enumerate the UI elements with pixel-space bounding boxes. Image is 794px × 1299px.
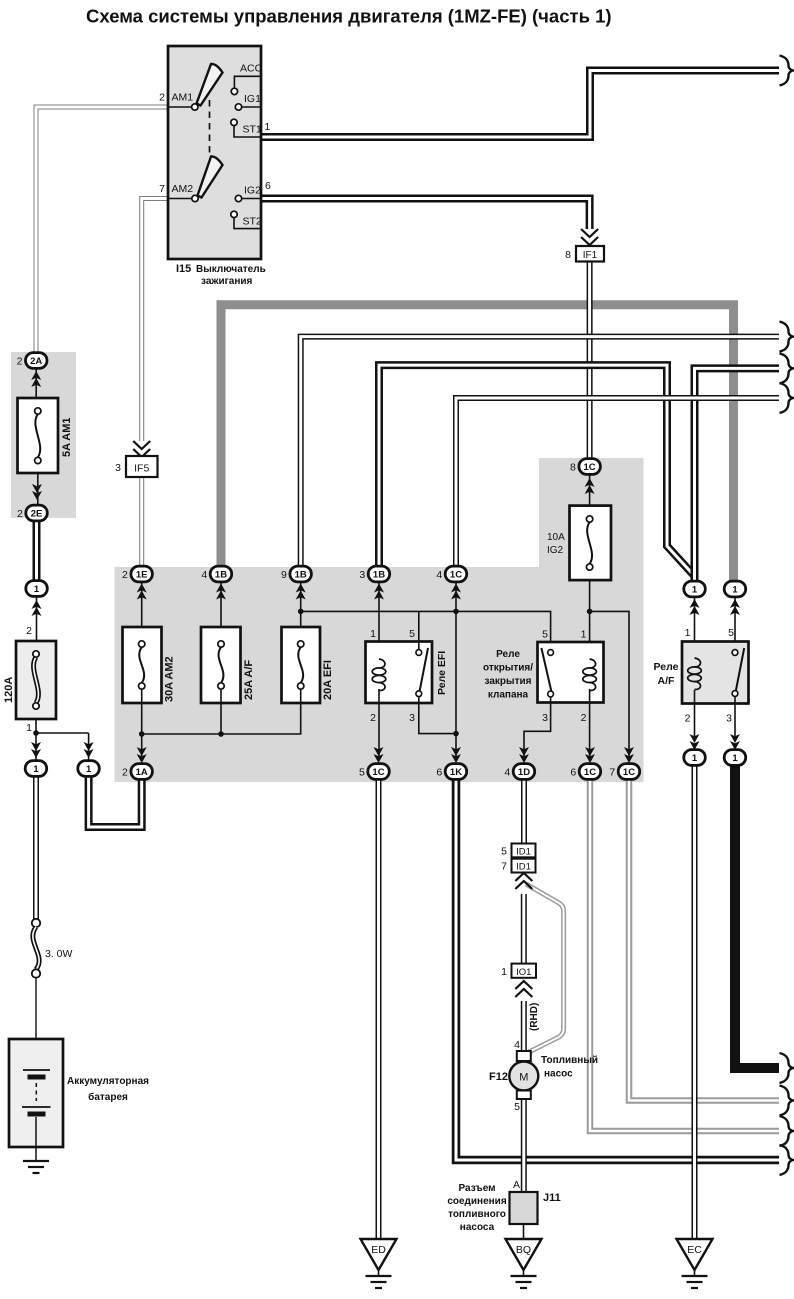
svg-text:8: 8: [565, 249, 571, 261]
svg-text:1: 1: [692, 753, 698, 764]
svg-text:1C: 1C: [450, 570, 462, 581]
svg-text:4: 4: [436, 569, 442, 581]
svg-text:1: 1: [685, 627, 691, 639]
svg-text:соединения: соединения: [447, 1196, 507, 1207]
svg-text:6: 6: [570, 766, 576, 778]
svg-text:1: 1: [581, 629, 587, 641]
svg-text:1: 1: [732, 753, 738, 764]
svg-text:2: 2: [17, 508, 23, 520]
svg-text:2: 2: [159, 92, 165, 104]
svg-text:2: 2: [26, 625, 32, 637]
svg-text:1D: 1D: [518, 767, 530, 778]
svg-text:5: 5: [409, 628, 415, 640]
svg-text:1: 1: [86, 764, 92, 775]
svg-text:5: 5: [542, 629, 548, 641]
svg-text:EC: EC: [687, 1244, 702, 1256]
svg-text:ED: ED: [371, 1244, 386, 1256]
svg-text:насос: насос: [544, 1069, 573, 1080]
svg-text:1C: 1C: [372, 767, 384, 778]
svg-text:Схема системы управления двига: Схема системы управления двигателя (1MZ-…: [86, 6, 612, 27]
svg-text:1A: 1A: [136, 767, 148, 778]
svg-text:2E: 2E: [31, 509, 43, 520]
svg-text:закрытия: закрытия: [485, 676, 532, 687]
svg-text:4: 4: [504, 766, 510, 778]
svg-text:4: 4: [201, 569, 207, 581]
svg-text:5: 5: [514, 1101, 520, 1113]
svg-text:2: 2: [581, 712, 587, 724]
svg-text:ST1: ST1: [243, 124, 262, 136]
svg-text:IG2: IG2: [244, 185, 261, 197]
svg-text:2A: 2A: [30, 356, 42, 367]
svg-text:3: 3: [115, 462, 121, 474]
svg-text:30A AM2: 30A AM2: [164, 656, 176, 702]
svg-text:батарея: батарея: [88, 1091, 128, 1103]
svg-text:6: 6: [436, 766, 442, 778]
svg-text:1B: 1B: [373, 570, 385, 581]
svg-text:IF5: IF5: [134, 463, 149, 475]
svg-text:3: 3: [542, 712, 548, 724]
svg-text:1C: 1C: [623, 767, 635, 778]
svg-text:1: 1: [732, 585, 738, 596]
svg-text:BQ: BQ: [516, 1244, 531, 1256]
svg-text:I15: I15: [176, 263, 191, 275]
svg-text:1: 1: [265, 121, 271, 133]
svg-text:ST2: ST2: [243, 216, 262, 228]
svg-text:7: 7: [501, 861, 507, 873]
svg-text:A/F: A/F: [658, 675, 676, 687]
svg-text:1: 1: [692, 585, 698, 596]
svg-text:(RHD): (RHD): [529, 1003, 540, 1031]
svg-text:открытия/: открытия/: [483, 663, 533, 674]
svg-text:5: 5: [728, 627, 734, 639]
svg-text:клапана: клапана: [488, 690, 529, 701]
svg-text:A: A: [513, 1179, 520, 1191]
svg-text:IG1: IG1: [244, 93, 261, 105]
svg-text:1: 1: [34, 584, 40, 595]
svg-text:F12: F12: [489, 1071, 508, 1083]
svg-text:IG2: IG2: [547, 545, 564, 556]
svg-text:1: 1: [33, 764, 39, 775]
svg-text:1C: 1C: [584, 767, 596, 778]
svg-text:зажигания: зажигания: [201, 276, 253, 287]
svg-text:7: 7: [159, 183, 165, 195]
svg-text:AM2: AM2: [172, 183, 194, 195]
svg-text:топливного: топливного: [448, 1209, 506, 1220]
svg-text:Разъем: Разъем: [458, 1183, 495, 1194]
svg-text:1C: 1C: [584, 462, 596, 473]
svg-text:8: 8: [570, 461, 576, 473]
svg-text:Реле EFI: Реле EFI: [436, 651, 448, 695]
svg-text:ACC: ACC: [240, 63, 263, 75]
svg-text:AM1: AM1: [172, 92, 194, 104]
svg-text:ID1: ID1: [516, 862, 531, 873]
svg-text:120A: 120A: [3, 677, 15, 703]
svg-text:2: 2: [17, 355, 23, 367]
svg-text:M: M: [519, 1072, 528, 1084]
svg-text:3: 3: [726, 713, 732, 725]
svg-text:5: 5: [359, 766, 365, 778]
svg-text:2: 2: [370, 712, 376, 724]
svg-text:1B: 1B: [295, 570, 307, 581]
svg-text:9: 9: [281, 569, 287, 581]
svg-text:3: 3: [359, 569, 365, 581]
svg-text:6: 6: [265, 180, 271, 192]
svg-text:2: 2: [122, 569, 128, 581]
svg-text:Реле: Реле: [654, 661, 679, 673]
svg-text:20A EFI: 20A EFI: [322, 660, 334, 700]
svg-text:ID1: ID1: [516, 847, 531, 858]
svg-text:7: 7: [609, 766, 615, 778]
svg-text:J11: J11: [543, 1192, 561, 1204]
svg-text:Аккумуляторная: Аккумуляторная: [67, 1076, 149, 1087]
svg-text:5: 5: [501, 846, 507, 858]
svg-text:1E: 1E: [136, 570, 148, 581]
svg-text:Выключатель: Выключатель: [196, 264, 266, 275]
svg-text:IO1: IO1: [516, 967, 531, 978]
svg-text:2: 2: [122, 766, 128, 778]
svg-text:Топливный: Топливный: [541, 1055, 598, 1066]
svg-text:3: 3: [409, 712, 415, 724]
svg-text:1B: 1B: [215, 570, 227, 581]
svg-text:1K: 1K: [450, 767, 462, 778]
svg-text:4: 4: [514, 1039, 520, 1051]
svg-text:1: 1: [501, 966, 507, 978]
svg-text:насоса: насоса: [460, 1222, 495, 1233]
svg-text:5A AM1: 5A AM1: [61, 417, 73, 457]
svg-text:25A A/F: 25A A/F: [243, 660, 255, 700]
svg-text:Реле: Реле: [496, 649, 520, 660]
svg-text:10A: 10A: [547, 532, 565, 543]
svg-text:1: 1: [26, 722, 32, 734]
svg-text:IF1: IF1: [583, 250, 598, 261]
svg-text:1: 1: [370, 628, 376, 640]
svg-text:2: 2: [685, 713, 691, 725]
svg-text:3. 0W: 3. 0W: [45, 948, 73, 960]
